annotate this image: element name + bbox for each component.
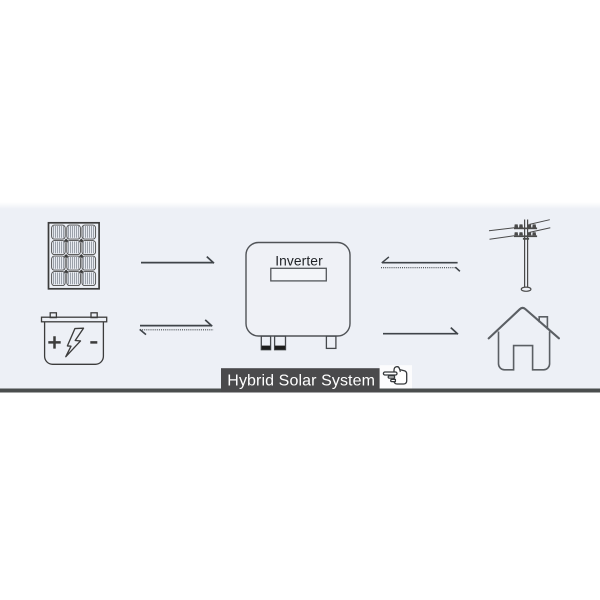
svg-text:Inverter: Inverter <box>275 254 323 269</box>
svg-text:Hybrid Solar System: Hybrid Solar System <box>227 372 375 389</box>
